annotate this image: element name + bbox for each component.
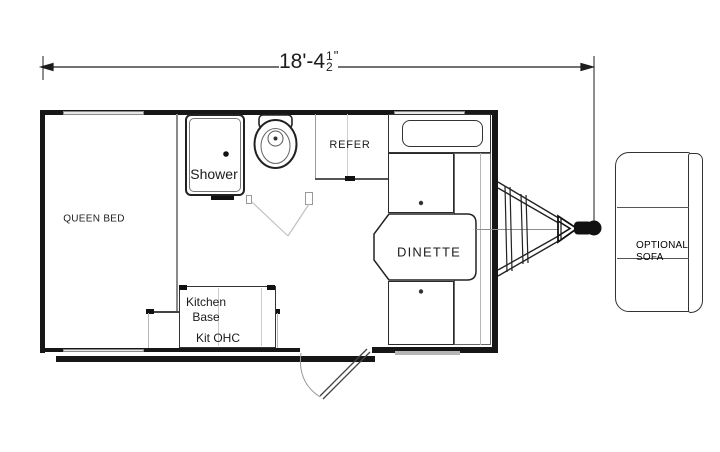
refer-handle-tick xyxy=(345,176,355,181)
bath-door-jamb-right xyxy=(305,192,313,205)
floorplan-canvas: 18'-4 1 2 " QUEEN BED Shower REFER DINET… xyxy=(0,0,720,452)
dimension-whole: 18'-4 xyxy=(279,50,325,74)
trailer-tongue-frame xyxy=(498,182,562,276)
kitchen-ohc-side-right xyxy=(277,313,278,348)
window-top-bedroom xyxy=(63,111,144,115)
label-dinette: DINETTE xyxy=(397,245,461,260)
dinette-bench-rear xyxy=(388,281,454,345)
entry-step-strip xyxy=(395,351,460,355)
front-storage-lid xyxy=(402,120,483,147)
label-kit-ohc: Kit OHC xyxy=(196,331,240,345)
awning-bar xyxy=(56,356,375,362)
dimension-frac-denominator: 2 xyxy=(326,62,333,73)
kitchen-base-tick-left xyxy=(179,285,187,290)
label-kitchen-line2: Base xyxy=(192,310,219,324)
dimension-text: 18'-4 1 2 " xyxy=(279,50,338,74)
dimension-line xyxy=(41,56,594,224)
bath-door-jamb-left xyxy=(246,195,252,204)
toilet-icon xyxy=(255,115,297,168)
dinette-bench-front xyxy=(388,153,454,213)
hitch-ball-icon xyxy=(587,221,602,236)
label-optional-sofa: OPTIONAL SOFA xyxy=(636,240,688,264)
dimension-fraction: 1 2 xyxy=(326,51,333,73)
kitchen-ohc-side-left xyxy=(148,313,149,348)
wall-left xyxy=(40,110,45,353)
kitchen-base-tick-right xyxy=(267,285,275,290)
optional-sofa-divider-1 xyxy=(617,207,689,208)
optional-sofa-backrest xyxy=(688,153,703,313)
label-refer: REFER xyxy=(329,139,370,151)
label-optional-sofa-line1: OPTIONAL xyxy=(636,240,688,252)
refer-left-wall xyxy=(315,114,316,179)
bathroom-door-swing xyxy=(252,202,309,236)
shower-threshold xyxy=(211,196,234,200)
wall-right xyxy=(492,110,498,353)
linework-overlay xyxy=(0,0,720,452)
kitchen-sink-line-2 xyxy=(261,288,262,346)
tongue-coupler xyxy=(558,216,602,242)
bedroom-partition-wall xyxy=(176,114,178,311)
dimension-unit-mark: " xyxy=(334,48,339,63)
label-optional-sofa-line2: SOFA xyxy=(636,252,688,264)
label-queen-bed: QUEEN BED xyxy=(63,214,125,225)
dinette-back-column-line xyxy=(480,153,481,345)
label-kitchen-line1: Kitchen xyxy=(186,295,226,309)
optional-sofa-body xyxy=(615,152,691,312)
jack-post xyxy=(574,222,592,235)
window-bottom-bedroom xyxy=(63,349,144,353)
label-shower: Shower xyxy=(190,166,237,182)
